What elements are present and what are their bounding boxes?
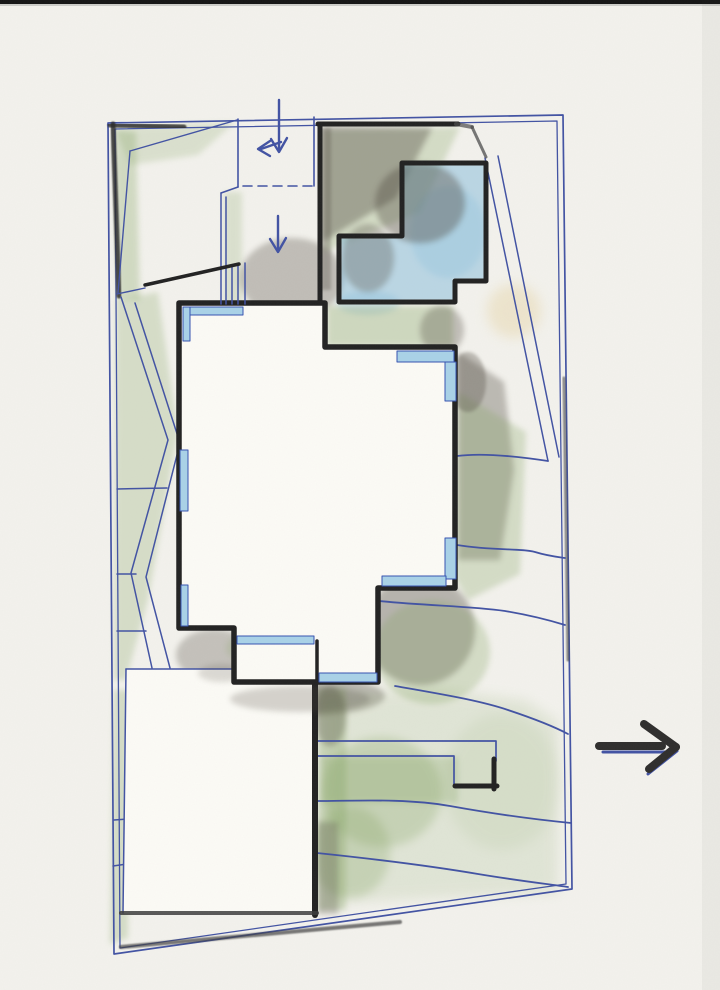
window-topleft-vertical bbox=[183, 307, 190, 341]
window-topright-horizontal bbox=[397, 351, 454, 362]
window-right-lower-horizontal bbox=[382, 576, 446, 586]
window-topright-vertical bbox=[445, 362, 456, 401]
window-left-middle bbox=[180, 450, 188, 511]
site-plan-sketch bbox=[0, 0, 720, 990]
scanned-site-plan-page bbox=[0, 0, 720, 990]
scan-shade-right bbox=[702, 0, 720, 990]
contour-dash-1 bbox=[117, 488, 167, 489]
green-wash-right-light bbox=[444, 714, 560, 850]
window-topleft-horizontal bbox=[183, 307, 243, 315]
scan-edge-top-soft bbox=[0, 4, 720, 6]
window-bottom bbox=[319, 673, 377, 682]
window-bumpout-glass bbox=[237, 636, 314, 644]
scan-edge-top bbox=[0, 0, 720, 4]
pencil-line-topleft-horizontal bbox=[110, 125, 184, 127]
drawing-layers bbox=[0, 0, 720, 990]
green-band-structure bbox=[322, 757, 458, 803]
graphite-smudge-terracewall-bottom bbox=[318, 822, 338, 914]
window-right-lower-vertical bbox=[445, 538, 456, 579]
graphite-spill-bumpout bbox=[230, 686, 370, 712]
graphite-smudge-pool-corner bbox=[375, 163, 465, 243]
window-left-lower bbox=[181, 585, 188, 626]
